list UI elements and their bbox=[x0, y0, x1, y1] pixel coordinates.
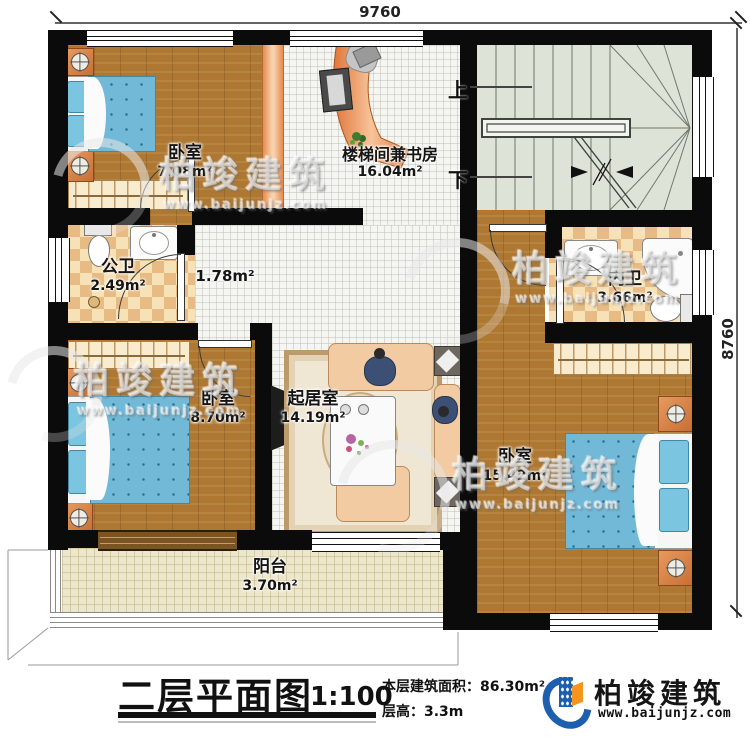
balcony-railing bbox=[50, 548, 62, 612]
stairs-up-leader bbox=[470, 86, 532, 88]
stairs-up-label: 上 bbox=[448, 74, 468, 103]
room-label-bedroom1: 卧室7.08m² bbox=[140, 144, 230, 180]
bed-sheet bbox=[634, 434, 658, 546]
person-head bbox=[438, 406, 449, 417]
wall bbox=[423, 30, 712, 45]
bed-pillow bbox=[659, 488, 689, 532]
wall bbox=[460, 210, 477, 613]
wall bbox=[233, 30, 290, 45]
floor-height-text: 层高：3.3m bbox=[382, 701, 463, 721]
wardrobe bbox=[68, 341, 190, 369]
dimension-top: 9760 bbox=[348, 3, 412, 21]
balcony-railing bbox=[50, 612, 443, 628]
room-label-bedroom2: 卧室8.70m² bbox=[178, 390, 258, 426]
title-underline-shadow bbox=[118, 721, 376, 723]
wall bbox=[255, 340, 272, 532]
person-sitting bbox=[364, 356, 396, 386]
brand-website: www.baijunjz.com bbox=[598, 706, 731, 721]
bedroom2-door-threshold bbox=[195, 323, 250, 340]
partition-opening bbox=[262, 45, 284, 208]
wall bbox=[545, 227, 562, 258]
nightstand bbox=[658, 396, 693, 432]
wall bbox=[250, 323, 272, 340]
stairs-down-leader bbox=[470, 176, 532, 178]
nightstand bbox=[66, 48, 94, 76]
bedroom1-door-threshold bbox=[150, 208, 192, 225]
wall bbox=[443, 613, 550, 630]
wall bbox=[658, 613, 712, 630]
window bbox=[87, 30, 233, 47]
bed-pillow bbox=[68, 450, 88, 494]
window bbox=[48, 238, 70, 302]
room-label-bedroom3: 卧室15.42m² bbox=[475, 448, 555, 484]
wall bbox=[692, 45, 712, 77]
wall bbox=[48, 30, 87, 45]
window bbox=[692, 250, 714, 315]
room-label-study: 楼梯间兼书房16.04m² bbox=[320, 146, 460, 180]
dimension-right: 8760 bbox=[719, 309, 737, 369]
wall bbox=[48, 323, 198, 340]
wall bbox=[48, 208, 150, 225]
wall bbox=[192, 208, 363, 225]
balcony-door-window bbox=[312, 532, 440, 552]
nightstand bbox=[64, 368, 93, 398]
title-underline bbox=[118, 712, 376, 718]
room-label-balcony: 阳台3.70m² bbox=[225, 558, 315, 594]
window bbox=[98, 530, 237, 551]
side-table bbox=[434, 346, 461, 376]
room-label-hall: 1.78m² bbox=[185, 268, 265, 285]
potted-plant bbox=[352, 132, 361, 141]
person-head bbox=[374, 348, 385, 359]
flower-vase bbox=[346, 434, 356, 444]
nightstand bbox=[658, 550, 693, 586]
nightstand bbox=[66, 150, 94, 182]
brand-logo-icon bbox=[544, 670, 590, 724]
room-label-living: 起居室14.19m² bbox=[268, 390, 358, 426]
wall bbox=[692, 315, 712, 630]
handrail bbox=[482, 119, 630, 137]
computer-monitor bbox=[319, 68, 353, 113]
wall bbox=[545, 210, 712, 227]
wardrobe bbox=[553, 343, 694, 375]
bed-pillow bbox=[68, 402, 88, 446]
window bbox=[692, 77, 714, 177]
window bbox=[550, 613, 658, 632]
wall bbox=[237, 530, 312, 550]
window bbox=[290, 30, 423, 47]
room-label-inner-bath: 内卫3.66m² bbox=[585, 270, 665, 306]
plan-scale: 1:100 bbox=[310, 682, 393, 712]
wall bbox=[545, 322, 712, 343]
room-label-public-bath: 公卫2.49m² bbox=[78, 258, 158, 294]
staircase bbox=[477, 45, 692, 210]
side-table bbox=[434, 477, 461, 507]
wall bbox=[62, 530, 98, 548]
wall bbox=[177, 225, 195, 255]
cup bbox=[358, 404, 369, 415]
bed-pillow bbox=[659, 440, 689, 484]
floor-area-text: 本层建筑面积：86.30m² bbox=[382, 676, 545, 696]
floor-plan: 上 下 bbox=[0, 0, 750, 738]
wall bbox=[443, 532, 460, 613]
floor-drain bbox=[88, 296, 100, 308]
dimension-line-top bbox=[55, 22, 742, 24]
